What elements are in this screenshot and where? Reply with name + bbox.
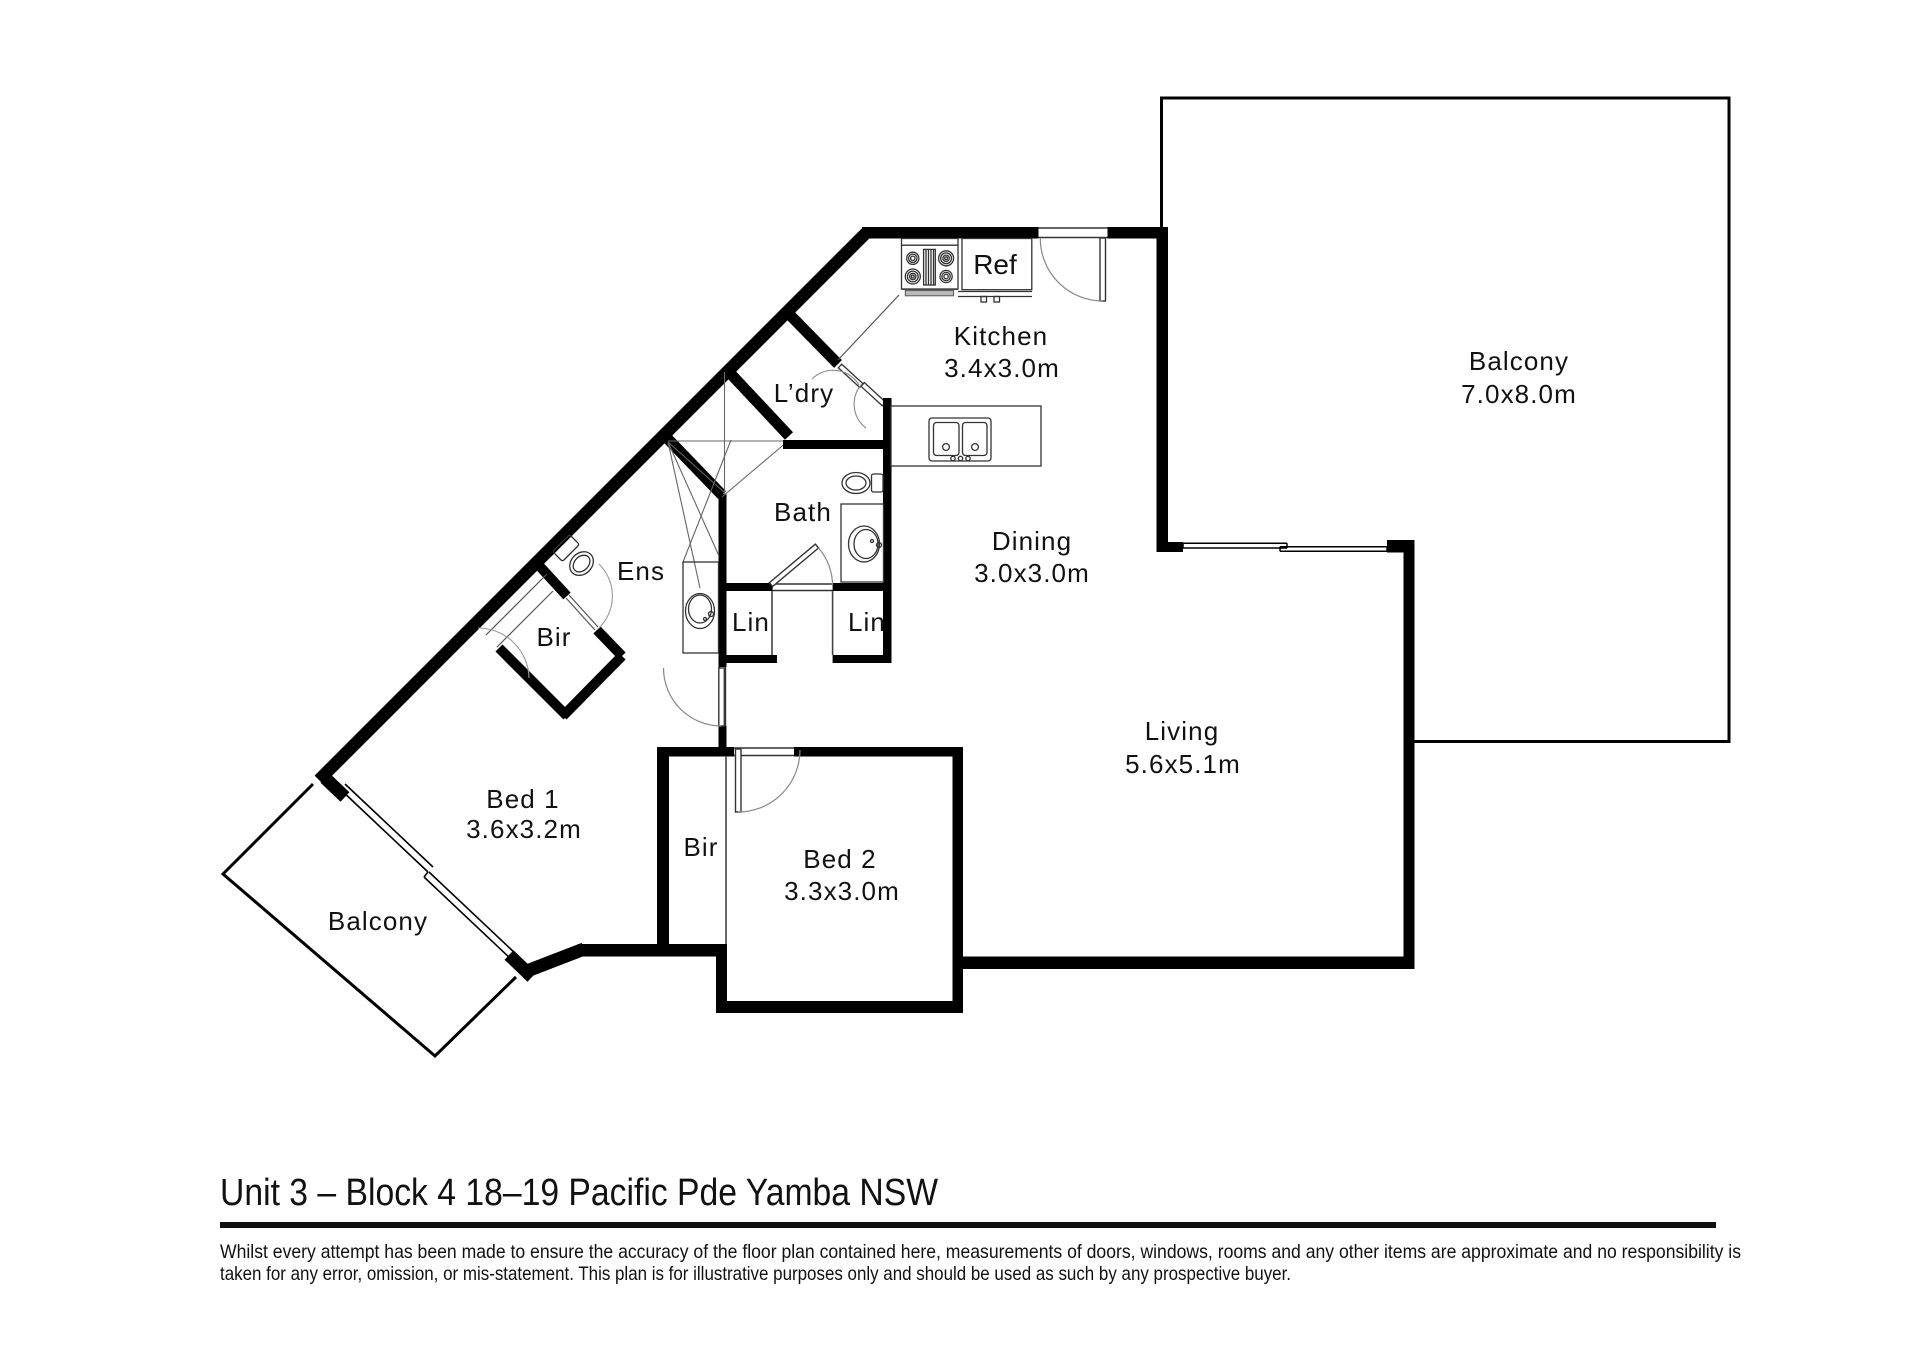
svg-text:3.3x3.0m: 3.3x3.0m: [784, 876, 900, 906]
svg-text:3.6x3.2m: 3.6x3.2m: [466, 814, 582, 844]
svg-text:3.0x3.0m: 3.0x3.0m: [974, 558, 1090, 588]
svg-text:Balcony: Balcony: [1469, 346, 1569, 376]
svg-text:Ref: Ref: [973, 249, 1017, 280]
svg-text:Dining: Dining: [992, 526, 1072, 556]
svg-text:Bir: Bir: [683, 832, 718, 862]
svg-text:Lin: Lin: [848, 607, 886, 637]
svg-text:Bed 1: Bed 1: [486, 784, 559, 814]
svg-text:Lin: Lin: [732, 607, 770, 637]
svg-text:Whilst every attempt has been: Whilst every attempt has been made to en…: [220, 1241, 1741, 1263]
svg-text:Bath: Bath: [774, 497, 832, 527]
svg-text:Bed 2: Bed 2: [803, 844, 876, 874]
svg-text:L’dry: L’dry: [774, 378, 834, 408]
svg-text:5.6x5.1m: 5.6x5.1m: [1125, 749, 1241, 779]
svg-text:Kitchen: Kitchen: [954, 321, 1048, 351]
svg-text:taken for any error, omission,: taken for any error, omission, or mis-st…: [220, 1263, 1291, 1285]
svg-text:Living: Living: [1145, 716, 1220, 746]
svg-text:3.4x3.0m: 3.4x3.0m: [944, 353, 1060, 383]
svg-text:7.0x8.0m: 7.0x8.0m: [1461, 379, 1577, 409]
svg-text:Ens: Ens: [617, 556, 665, 586]
svg-text:Balcony: Balcony: [328, 906, 428, 936]
svg-text:Bir: Bir: [536, 622, 571, 652]
svg-text:Unit 3 – Block 4 18–19 Pacific: Unit 3 – Block 4 18–19 Pacific Pde Yamba…: [220, 1172, 938, 1214]
